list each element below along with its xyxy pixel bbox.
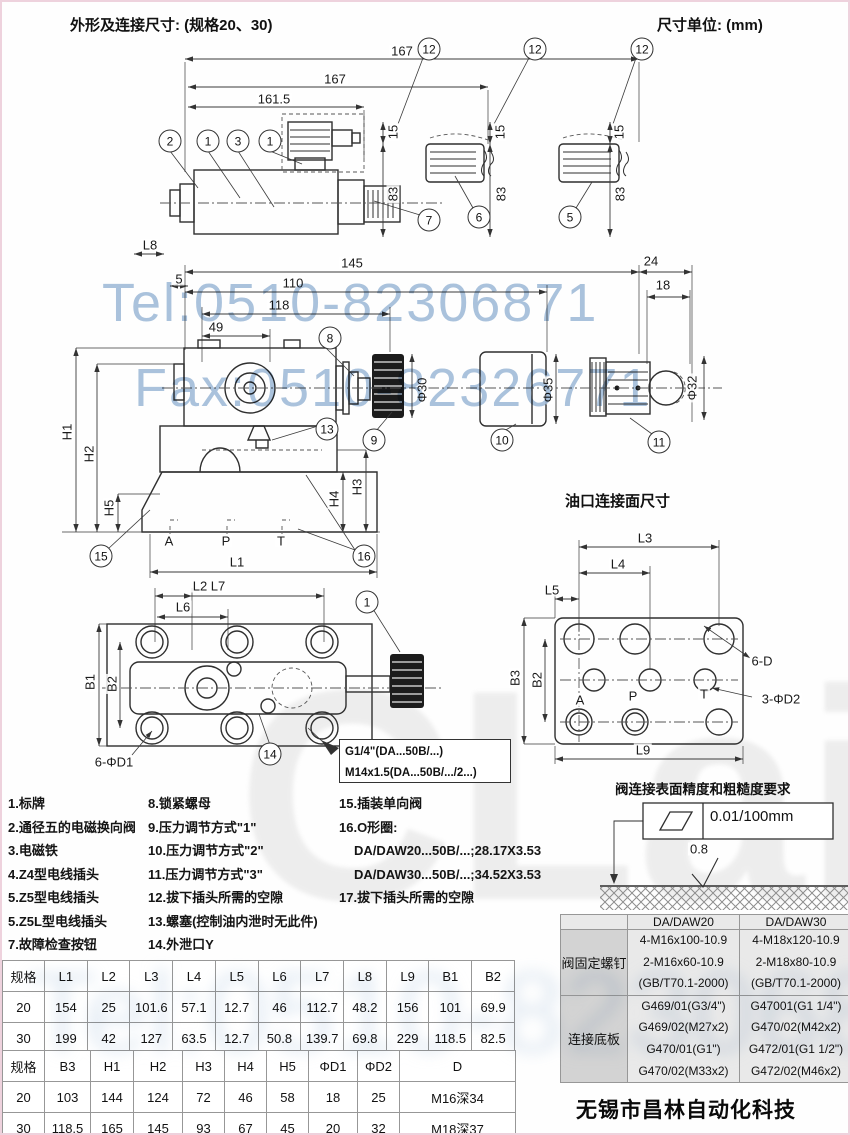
table-cell: M16深34 [400,1082,516,1113]
table-cell: 25 [87,992,130,1023]
legend-item: 13.螺塞(控制油内泄时无此件) [148,910,318,934]
legend-column-3: 15.插装单向阀16.O形圈:DA/DAW20...50B/...;28.17X… [339,792,541,910]
table-cell: 165 [91,1113,134,1135]
legend-item: 11.压力调节方式"3" [148,863,318,887]
legend-item: 17.拔下插头所需的空隙 [339,886,541,910]
thread-note-line2: M14x1.5(DA...50B/.../2...) [345,763,505,784]
legend-item: 5.Z5L型电线插头 [8,910,136,934]
table-cell: 156 [386,992,429,1023]
spec-cell-line: G470/02(M33x2) [628,1061,739,1083]
dim-label: B2 [106,674,119,694]
table-header-cell: H5 [267,1051,309,1082]
table-header-cell: H3 [183,1051,225,1082]
table-cell: 30 [3,1113,45,1135]
port-face-view [555,618,743,744]
callout-balloon: 1 [259,130,282,153]
table-cell: 12.7 [215,992,258,1023]
callout-balloon: 3 [227,130,250,153]
spec-row-label: 阀固定螺钉 [561,930,628,996]
callout-balloon: 1 [197,130,220,153]
dim-label: H3 [351,477,364,498]
dim-label: L3 [636,532,654,545]
table-header-cell: H1 [91,1051,134,1082]
callout-balloon: 8 [319,327,342,350]
table-cell: 101 [429,992,472,1023]
spec-row-label: 连接底板 [561,995,628,1082]
table-cell: 46 [225,1082,267,1113]
callout-balloon: 11 [648,431,671,454]
legend-item: 4.Z4型电线插头 [8,863,136,887]
dim-label: 110 [281,277,306,290]
legend-item: 12.拔下插头所需的空隙 [148,886,318,910]
spec-cell: G47001(G1 1/4")G470/02(M42x2)G472/01(G1 … [740,995,850,1082]
callout-balloon: 13 [316,418,339,441]
thread-note-box: G1/4"(DA...50B/...) M14x1.5(DA...50B/...… [339,739,511,783]
dim-label: 15 [494,123,507,141]
dim-label: Φ30 [416,376,429,405]
legend-item: 5.Z5型电线插头 [8,886,136,910]
spec-cell-line: G469/02(M27x2) [628,1017,739,1039]
table-header-cell: B1 [429,961,472,992]
dim-label: T [698,688,710,701]
dim-label: A [574,694,587,707]
dim-label: 161.5 [256,93,293,106]
dim-label: 167 [322,73,348,86]
dim-label: L8 [141,239,159,252]
dim-label: 167 [389,45,415,58]
table-cell: 67 [225,1113,267,1135]
legend-item: 2.通径五的电磁换向阀 [8,816,136,840]
dim-label: L1 [228,556,246,569]
dim-label: P [220,535,233,548]
dim-label: 3-ΦD2 [760,693,803,706]
table-header-cell: 规格 [3,1051,45,1082]
table-cell: 82.5 [472,1023,515,1054]
legend-item: 14.外泄口Y [148,933,318,957]
spec-cell-line: G470/02(M42x2) [740,1017,850,1039]
table-cell: 30 [3,1023,45,1054]
dim-label: H4 [328,489,341,510]
legend-item: 3.电磁铁 [8,839,136,863]
datasheet-page: 外形及连接尺寸: (规格20、30) 尺寸单位: (mm) 油口连接面尺寸 阀连… [0,0,850,1135]
dim-label: B2 [531,670,544,690]
legend-item: 7.故障检查按钮 [8,933,136,957]
spec-cell-line: G470/01(G1") [628,1039,739,1061]
table-cell: 20 [3,1082,45,1113]
callout-balloon: 7 [418,209,441,232]
dim-label: 83 [614,185,627,203]
surface-requirement-title: 阀连接表面精度和粗糙度要求 [615,778,791,798]
spec-cell-line: (GB/T70.1-2000) [740,973,850,995]
legend-item: DA/DAW20...50B/...;28.17X3.53 [339,839,541,863]
flatness-tolerance-value: 0.01/100mm [710,808,793,825]
table-header-cell: ΦD2 [358,1051,400,1082]
dim-label: 6-D [750,655,775,668]
table-cell: 139.7 [301,1023,344,1054]
table-cell: 32 [358,1113,400,1135]
spec-cell-line: 2-M18x80-10.9 [740,952,850,974]
table-cell: 45 [267,1113,309,1135]
company-watermark: 无锡市昌林自动化科技 [576,1094,796,1124]
thread-note-line1: G1/4"(DA...50B/...) [345,742,505,763]
table-header-cell: L6 [258,961,301,992]
legend-item: 1.标牌 [8,792,136,816]
table-cell: 20 [3,992,45,1023]
table-cell: M18深37 [400,1113,516,1135]
dim-label: 18 [654,279,672,292]
table-cell: 63.5 [173,1023,216,1054]
spec-cell-line: (GB/T70.1-2000) [628,973,739,995]
legend-item: 8.锁紧螺母 [148,792,318,816]
spec-header-cell: DA/DAW20 [628,915,740,930]
table-header-cell: L2 [87,961,130,992]
legend-item: 15.插装单向阀 [339,792,541,816]
table-cell: 69.8 [344,1023,387,1054]
table-cell: 229 [386,1023,429,1054]
dim-label: Φ32 [686,374,699,403]
table-cell: 154 [45,992,88,1023]
dim-label: H2 [83,444,96,465]
dim-label: L6 [174,601,192,614]
table-cell: 57.1 [173,992,216,1023]
spec-cell-line: G472/01(G1 1/2") [740,1039,850,1061]
table-cell: 46 [258,992,301,1023]
callout-balloon: 12 [524,38,547,61]
table-cell: 118.5 [45,1113,91,1135]
dim-label: 6-ΦD1 [93,756,136,769]
table-header-cell: ΦD1 [309,1051,358,1082]
spec-cell: G469/01(G3/4")G469/02(M27x2)G470/01(G1")… [628,995,740,1082]
legend-item: 16.O形圈: [339,816,541,840]
table-cell: 58 [267,1082,309,1113]
spec-cell-line: G469/01(G3/4") [628,996,739,1018]
dim-label: L4 [609,558,627,571]
callout-balloon: 10 [491,429,514,452]
callout-balloon: 6 [468,206,491,229]
spec-header-cell: DA/DAW30 [740,915,850,930]
table-cell: 124 [134,1082,183,1113]
dimension-table-part2: 规格B3H1H2H3H4H5ΦD1ΦD2D2010314412472465818… [2,1050,516,1135]
callout-balloon: 1 [356,591,379,614]
spec-cell: 4-M18x120-10.92-M18x80-10.9(GB/T70.1-200… [740,930,850,996]
legend-column-1: 1.标牌2.通径五的电磁换向阀3.电磁铁4.Z4型电线插头5.Z5型电线插头5.… [8,792,136,957]
spec-table: DA/DAW20DA/DAW30阀固定螺钉4-M16x100-10.92-M16… [560,914,850,1083]
table-cell: 42 [87,1023,130,1054]
table-cell: 145 [134,1113,183,1135]
table-header-cell: L7 [301,961,344,992]
dim-label: 118 [267,299,292,312]
callout-balloon: 12 [631,38,654,61]
table-header-cell: B3 [45,1051,91,1082]
table-cell: 20 [309,1113,358,1135]
callout-balloon: 9 [363,429,386,452]
legend-item: DA/DAW30...50B/...;34.52X3.53 [339,863,541,887]
table-cell: 101.6 [130,992,173,1023]
dim-label: Φ35 [542,376,555,405]
table-cell: 72 [183,1082,225,1113]
legend-item: 10.压力调节方式"2" [148,839,318,863]
table-header-cell: L1 [45,961,88,992]
dim-label: H1 [61,422,74,443]
spec-cell-line: G47001(G1 1/4") [740,996,850,1018]
table-header-cell: H2 [134,1051,183,1082]
callout-balloon: 15 [90,545,113,568]
dim-label: 24 [642,255,660,268]
table-cell: 118.5 [429,1023,472,1054]
table-cell: 127 [130,1023,173,1054]
dim-label: A [163,535,176,548]
valve-top-view [107,624,390,746]
table-header-cell: B2 [472,961,515,992]
callout-balloon: 16 [353,545,376,568]
table-cell: 112.7 [301,992,344,1023]
table-header-cell: D [400,1051,516,1082]
dim-label: P [627,690,640,703]
table-cell: 18 [309,1082,358,1113]
table-cell: 50.8 [258,1023,301,1054]
spec-header-cell [561,915,628,930]
dim-label: 83 [495,185,508,203]
dim-label: 49 [207,321,225,334]
legend-item: 9.压力调节方式"1" [148,816,318,840]
dim-label: 145 [339,257,365,270]
dim-label: 5 [173,273,184,286]
callout-balloon: 12 [418,38,441,61]
dim-label: B1 [84,672,97,692]
page-title: 外形及连接尺寸: (规格20、30) [70,14,273,35]
dim-label: L2 L7 [191,580,228,593]
dim-label: L5 [543,584,561,597]
table-cell: 93 [183,1113,225,1135]
port-face-title: 油口连接面尺寸 [565,490,670,511]
dim-label: B3 [509,668,522,688]
table-header-cell: L8 [344,961,387,992]
dim-label: T [275,535,287,548]
table-cell: 103 [45,1082,91,1113]
legend-column-2: 8.锁紧螺母9.压力调节方式"1"10.压力调节方式"2"11.压力调节方式"3… [148,792,318,957]
table-header-cell: 规格 [3,961,45,992]
spec-cell-line: G472/02(M46x2) [740,1061,850,1083]
table-cell: 25 [358,1082,400,1113]
table-header-cell: L9 [386,961,429,992]
dim-label: L9 [634,744,652,757]
spec-cell-line: 2-M16x60-10.9 [628,952,739,974]
table-header-cell: L3 [130,961,173,992]
spec-cell: 4-M16x100-10.92-M16x60-10.9(GB/T70.1-200… [628,930,740,996]
dim-label: 0.8 [688,843,710,856]
callout-balloon: 2 [159,130,182,153]
table-cell: 69.9 [472,992,515,1023]
spec-cell-line: 4-M18x120-10.9 [740,930,850,952]
dim-label: 15 [613,123,626,141]
callout-balloon: 14 [259,743,282,766]
table-cell: 144 [91,1082,134,1113]
table-cell: 199 [45,1023,88,1054]
dimension-table-part1: 规格L1L2L3L4L5L6L7L8L9B1B22015425101.657.1… [2,960,515,1054]
callout-balloon: 5 [559,206,582,229]
unit-note: 尺寸单位: (mm) [657,14,763,35]
spec-cell-line: 4-M16x100-10.9 [628,930,739,952]
table-cell: 48.2 [344,992,387,1023]
dim-label: 83 [387,185,400,203]
table-header-cell: L5 [215,961,258,992]
table-header-cell: H4 [225,1051,267,1082]
dim-label: H5 [103,498,116,519]
dim-label: 15 [387,123,400,141]
table-header-cell: L4 [173,961,216,992]
table-cell: 12.7 [215,1023,258,1054]
